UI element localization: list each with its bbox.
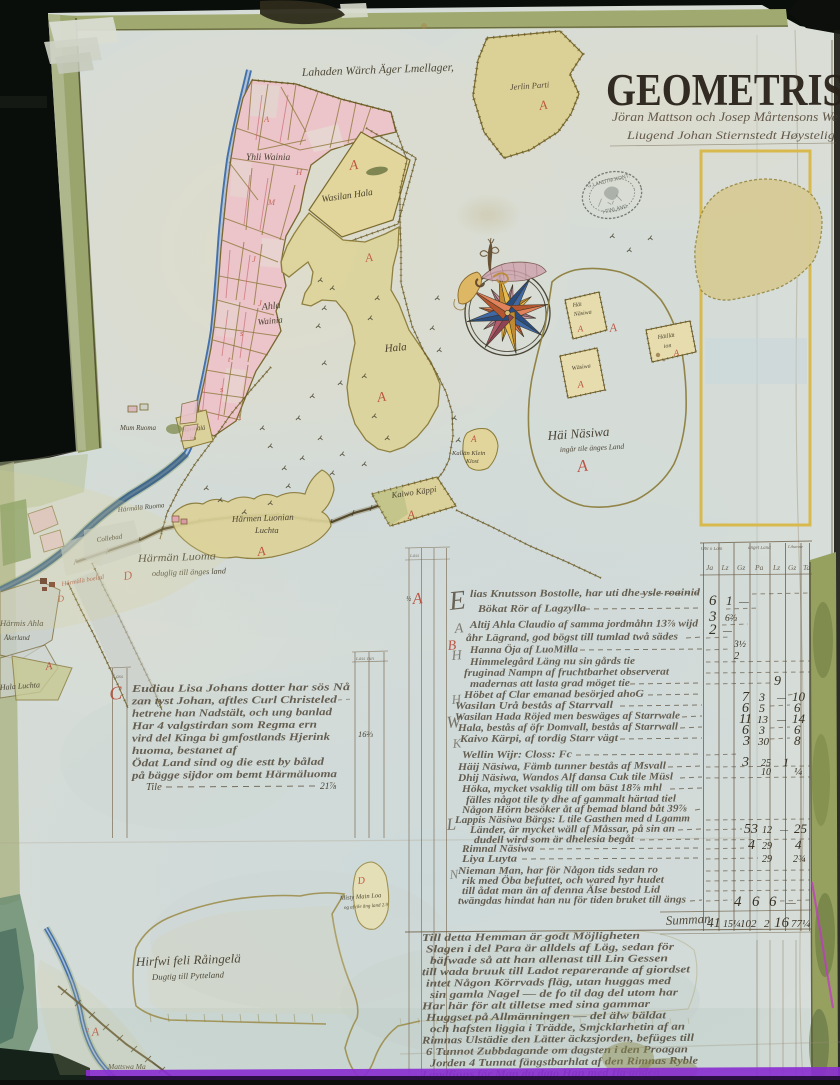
svg-text:4: 4 [748, 838, 755, 853]
svg-text:Bökat Rör af Lagzylla: Bökat Rör af Lagzylla [477, 603, 586, 615]
svg-text:29: 29 [762, 841, 772, 852]
svg-text:—: — [738, 596, 749, 608]
svg-text:lias Knutsson Bostolle, har ut: lias Knutsson Bostolle, har uti dhe ysle… [470, 587, 701, 600]
svg-text:1: 1 [726, 593, 733, 608]
svg-text:twängdas hindat han nu för tid: twängdas hindat han nu för tiden bruket … [458, 894, 686, 907]
svg-text:16⅔: 16⅔ [358, 729, 374, 739]
svg-text:2: 2 [709, 622, 717, 638]
svg-text:4: 4 [795, 837, 802, 852]
svg-text:29: 29 [762, 854, 772, 865]
svg-text:Hala, bestås af öfr Domvall, b: Hala, bestås af öfr Domvall, bestås af S… [457, 721, 678, 734]
svg-text:Summan: Summan [665, 911, 711, 928]
svg-text:fruginad Nampn af fruchtbarhet: fruginad Nampn af fruchtbarhet observera… [464, 667, 670, 679]
svg-text:—: — [722, 626, 732, 637]
svg-text:53: 53 [744, 822, 758, 837]
svg-text:anget Land: anget Land [748, 546, 771, 551]
svg-text:Gz: Gz [737, 563, 745, 572]
svg-text:—: — [776, 693, 786, 704]
svg-text:Pa: Pa [754, 563, 764, 572]
svg-text:6: 6 [709, 593, 717, 609]
svg-text:åhr Lägrand, god bögst till tu: åhr Lägrand, god bögst till tumlad twå s… [466, 632, 678, 644]
svg-text:102: 102 [740, 918, 757, 930]
svg-text:A: A [235, 412, 242, 422]
svg-text:6: 6 [769, 894, 777, 910]
svg-text:A: A [453, 621, 464, 637]
svg-text:6: 6 [752, 894, 760, 910]
svg-text:GEOMETRIS: GEOMETRIS [606, 65, 840, 115]
svg-text:Lass: Lass [409, 554, 419, 559]
svg-text:Kaivo Kärpi, af tordig Starr v: Kaivo Kärpi, af tordig Starr vägt [459, 733, 620, 745]
svg-text:Kallän Klein: Kallän Klein [451, 450, 485, 457]
svg-text:6⅔: 6⅔ [725, 614, 738, 624]
svg-text:—: — [776, 715, 786, 726]
svg-text:Hanna Öja af LuoMilla: Hanna Öja af LuoMilla [469, 642, 578, 656]
svg-text:ion: ion [663, 343, 671, 350]
svg-text:Liugend Johan Stiernstedt Høys: Liugend Johan Stiernstedt Høystelig [626, 128, 835, 142]
svg-text:77¼: 77¼ [791, 918, 810, 930]
svg-text:Ta: Ta [803, 563, 810, 572]
svg-text:Lass Tun: Lass Tun [355, 657, 374, 662]
svg-text:Luchta: Luchta [254, 525, 279, 535]
svg-text:A: A [411, 590, 423, 608]
svg-text:Åkerland: Åkerland [3, 634, 30, 642]
svg-text:Liya Luyta: Liya Luyta [461, 854, 517, 865]
svg-text:3½: 3½ [733, 639, 746, 650]
svg-text:H: H [450, 691, 462, 707]
svg-text:Har 4 valgstirdan som Regma er: Har 4 valgstirdan som Regma ern [131, 720, 318, 733]
svg-text:Ahla: Ahla [260, 300, 281, 313]
svg-text:L: L [445, 814, 457, 834]
svg-text:25: 25 [794, 821, 808, 836]
svg-text:—: — [785, 897, 796, 909]
svg-text:½: ½ [406, 595, 412, 603]
svg-text:15¼: 15¼ [723, 919, 741, 930]
svg-text:10: 10 [761, 767, 771, 778]
svg-text:Eudiau Lisa Johans dotter h: Eudiau Lisa Johans dotter har sös Nå [131, 682, 350, 695]
svg-text:21⅞: 21⅞ [320, 782, 337, 792]
svg-text:12: 12 [762, 825, 772, 836]
svg-text:2: 2 [764, 918, 770, 930]
svg-text:Lass: Lass [112, 674, 123, 680]
svg-text:Altij Ahla Claudio af samma jo: Altij Ahla Claudio af samma jordmåhn 13⅞… [469, 618, 699, 631]
svg-text:H: H [450, 648, 463, 664]
svg-text:Mum Ruoma: Mum Ruoma [119, 424, 156, 432]
svg-text:Lihanne: Lihanne [787, 544, 803, 549]
svg-text:Klost: Klost [465, 459, 479, 465]
svg-text:Höbet af Clar emanad besörjed: Höbet af Clar emanad besörjed ahoG [463, 689, 645, 701]
svg-text:hetrene han Nadstält, och ung: hetrene han Nadstält, och ung banlad [132, 707, 333, 720]
svg-text:Lz: Lz [772, 563, 780, 572]
svg-text:Obl o Lam: Obl o Lam [701, 547, 723, 552]
svg-text:30: 30 [757, 736, 770, 748]
svg-text:9: 9 [774, 674, 781, 689]
svg-text:3: 3 [758, 723, 765, 737]
svg-text:Ja: Ja [706, 563, 713, 572]
svg-text:E: E [446, 584, 467, 616]
svg-text:A: A [263, 114, 270, 124]
svg-text:5: 5 [759, 701, 765, 715]
svg-text:Yhli Wainia: Yhli Wainia [246, 153, 291, 163]
svg-text:—: — [779, 825, 789, 835]
svg-text:16: 16 [774, 915, 790, 931]
svg-text:3: 3 [741, 755, 749, 770]
svg-text:Gz: Gz [788, 563, 796, 572]
svg-text:¼: ¼ [794, 766, 802, 778]
svg-text:3: 3 [742, 734, 750, 749]
svg-text:Jöran Mattson och Josep Mårten: Jöran Mattson och Josep Mårtensons We [612, 110, 838, 124]
svg-text:M: M [267, 197, 276, 207]
svg-text:8: 8 [794, 733, 801, 748]
svg-text:C: C [108, 683, 123, 705]
svg-text:Lz: Lz [721, 563, 729, 572]
svg-text:Tile: Tile [146, 782, 162, 793]
svg-text:på bägge sijdor om bemt Härmäl: på bägge sijdor om bemt Härmäluoma [131, 769, 337, 782]
svg-text:huoma, bestanet af: huoma, bestanet af [132, 745, 239, 757]
svg-text:1: 1 [783, 755, 789, 769]
svg-text:2¾: 2¾ [793, 854, 806, 865]
svg-text:4: 4 [734, 894, 742, 910]
svg-text:Hala: Hala [383, 341, 407, 355]
svg-text:H: H [295, 167, 303, 177]
svg-text:2: 2 [734, 651, 740, 662]
svg-text:zan tyst Johan, aftles Curl Ch: zan tyst Johan, aftles Curl Christeled [131, 695, 338, 708]
svg-text:Wellin Wijr: Closs: Fc: Wellin Wijr: Closs: Fc [462, 749, 573, 761]
svg-text:A: A [470, 434, 477, 444]
svg-text:vird del Kinga bi gmfostlands: vird del Kinga bi gmfostlands Hjerink [132, 732, 331, 745]
svg-text:41: 41 [707, 915, 721, 930]
